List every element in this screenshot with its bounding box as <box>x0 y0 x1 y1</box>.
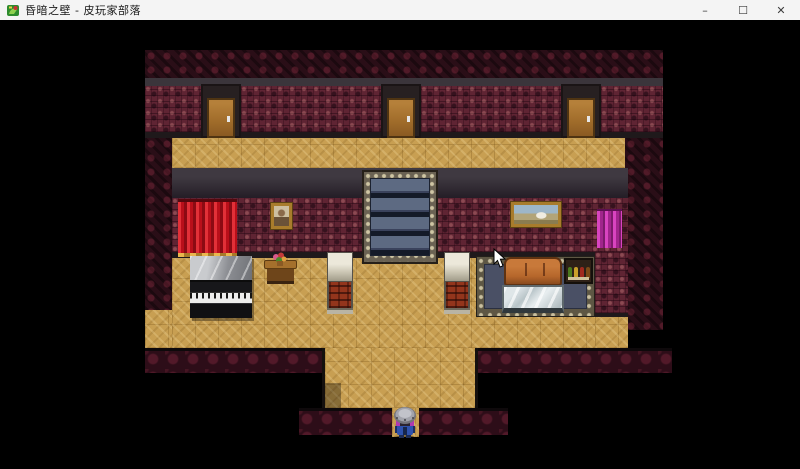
door-handle-icon <box>587 116 590 122</box>
bottle-icon <box>580 267 584 278</box>
upper-floor-band <box>172 138 625 168</box>
door-middle[interactable] <box>387 98 415 138</box>
app-icon <box>6 3 20 17</box>
door-right[interactable] <box>567 98 595 138</box>
left-wall-column <box>145 138 172 310</box>
bottle-icon <box>574 267 578 278</box>
lower-wall-bottom-left <box>299 408 392 435</box>
upright-piano <box>190 256 252 318</box>
magenta-curtain <box>597 209 622 248</box>
player-character[interactable] <box>392 406 418 440</box>
brick-pillar-left <box>327 252 353 314</box>
wall-top-cap <box>145 50 663 78</box>
landscape-painting <box>511 202 561 227</box>
mouse-cursor-icon <box>493 248 507 268</box>
corridor-floor <box>322 348 478 408</box>
brick-pillar-right <box>444 252 470 314</box>
window-title: 昏暗之壁 - 皮玩家部落 <box>25 2 141 18</box>
right-wall-column <box>625 138 663 330</box>
portrait-painting <box>271 203 292 229</box>
lower-wall-left <box>145 348 322 373</box>
leather-couch <box>504 257 562 286</box>
stair-runner <box>370 178 430 256</box>
right-wall-panel <box>595 252 628 313</box>
game-viewport[interactable] <box>0 20 800 469</box>
door-left[interactable] <box>207 98 235 138</box>
flower-table <box>264 260 297 288</box>
titlebar: 昏暗之壁 - 皮玩家部落 – ☐ ✕ <box>0 0 800 20</box>
staircase[interactable] <box>362 170 438 264</box>
bottle-shelf <box>564 258 593 284</box>
door-handle-icon <box>407 116 410 122</box>
flower-vase-icon <box>270 252 290 266</box>
main-floor-right-ext <box>595 317 628 348</box>
minimize-button[interactable]: – <box>686 0 724 20</box>
glass-coffee-table <box>502 285 564 313</box>
bottle-icon <box>568 267 572 278</box>
lower-wall-bottom-right <box>419 408 508 435</box>
maximize-button[interactable]: ☐ <box>724 0 762 20</box>
lower-wall-right <box>478 348 672 373</box>
floor-shadow <box>325 383 341 408</box>
main-floor-left-ext <box>145 310 172 348</box>
door-handle-icon <box>227 116 230 122</box>
close-button[interactable]: ✕ <box>762 0 800 20</box>
bottle-icon <box>586 267 590 278</box>
red-curtain <box>178 199 237 257</box>
